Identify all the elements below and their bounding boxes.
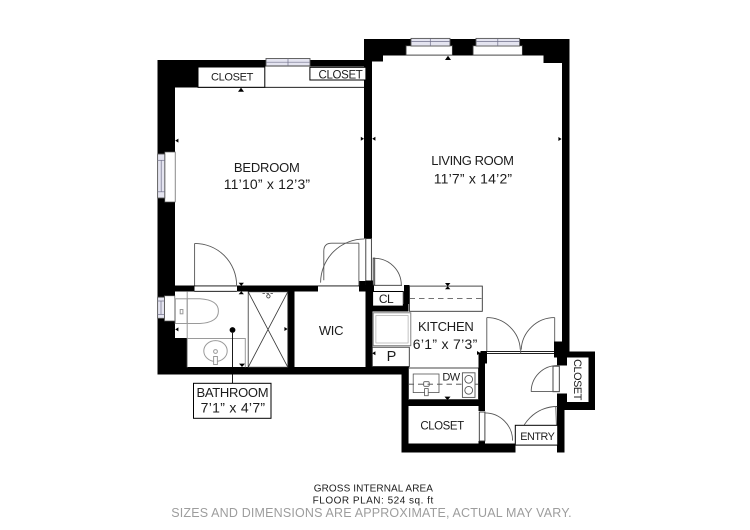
svg-text:ENTRY: ENTRY [520, 431, 554, 443]
svg-text:BATHROOM: BATHROOM [197, 385, 269, 400]
svg-text:CL: CL [379, 292, 394, 306]
svg-text:DW: DW [442, 372, 460, 384]
svg-text:CLOSET: CLOSET [571, 359, 583, 401]
svg-text:11’10” x 12’3”: 11’10” x 12’3” [224, 176, 311, 192]
svg-text:CLOSET: CLOSET [211, 72, 254, 84]
svg-text:6’1” x 7’3”: 6’1” x 7’3” [413, 336, 478, 352]
svg-text:KITCHEN: KITCHEN [418, 319, 474, 334]
svg-text:11’7” x 14’2”: 11’7” x 14’2” [434, 170, 513, 186]
svg-text:CLOSET: CLOSET [319, 69, 363, 81]
svg-text:P: P [387, 349, 397, 365]
svg-text:SIZES AND DIMENSIONS ARE APPRO: SIZES AND DIMENSIONS ARE APPROXIMATE, AC… [171, 506, 572, 520]
svg-text:CLOSET: CLOSET [420, 420, 464, 432]
svg-text:7’1” x 4’7”: 7’1” x 4’7” [201, 399, 266, 415]
svg-text:WIC: WIC [319, 323, 343, 338]
svg-text:BEDROOM: BEDROOM [234, 160, 300, 175]
svg-text:LIVING ROOM: LIVING ROOM [431, 153, 513, 168]
svg-text:GROSS INTERNAL AREA: GROSS INTERNAL AREA [314, 484, 434, 495]
